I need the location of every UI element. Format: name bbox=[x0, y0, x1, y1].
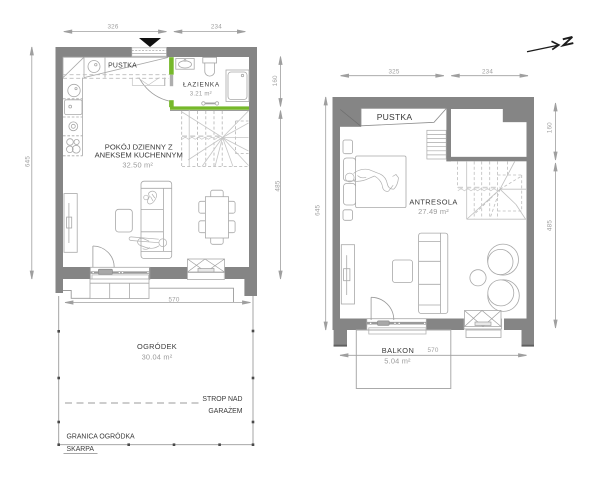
svg-text:160: 160 bbox=[547, 122, 554, 133]
svg-text:485: 485 bbox=[547, 220, 554, 231]
svg-text:PUSTKA: PUSTKA bbox=[377, 112, 413, 122]
svg-text:325: 325 bbox=[388, 68, 399, 75]
svg-text:645: 645 bbox=[314, 204, 321, 215]
svg-text:570: 570 bbox=[427, 347, 438, 354]
svg-text:3.21 m²: 3.21 m² bbox=[190, 91, 212, 98]
svg-text:27.49 m²: 27.49 m² bbox=[418, 207, 449, 216]
svg-text:ŁAZIENKA: ŁAZIENKA bbox=[183, 82, 220, 89]
svg-text:570: 570 bbox=[168, 296, 179, 303]
svg-text:234: 234 bbox=[211, 24, 222, 31]
svg-text:GRANICA OGRÓDKA: GRANICA OGRÓDKA bbox=[67, 432, 136, 441]
svg-text:OGRÓDEK: OGRÓDEK bbox=[137, 342, 177, 351]
svg-text:326: 326 bbox=[107, 24, 118, 31]
svg-text:32.50 m²: 32.50 m² bbox=[122, 161, 153, 170]
svg-text:SKARPA: SKARPA bbox=[67, 446, 95, 453]
svg-text:645: 645 bbox=[25, 156, 32, 167]
svg-text:30.04 m²: 30.04 m² bbox=[142, 353, 173, 362]
svg-text:ANEKSEM KUCHENNYM: ANEKSEM KUCHENNYM bbox=[95, 150, 183, 159]
svg-text:STROP NAD: STROP NAD bbox=[202, 396, 242, 403]
svg-text:PUSTKA: PUSTKA bbox=[108, 62, 137, 69]
svg-text:5.04 m²: 5.04 m² bbox=[384, 357, 411, 366]
svg-text:160: 160 bbox=[272, 75, 279, 86]
svg-text:GARAŻEM: GARAŻEM bbox=[208, 406, 242, 415]
svg-text:BALKON: BALKON bbox=[382, 346, 414, 355]
svg-text:ANTRESOLA: ANTRESOLA bbox=[409, 198, 457, 207]
svg-text:485: 485 bbox=[274, 180, 281, 191]
svg-text:234: 234 bbox=[482, 68, 493, 75]
